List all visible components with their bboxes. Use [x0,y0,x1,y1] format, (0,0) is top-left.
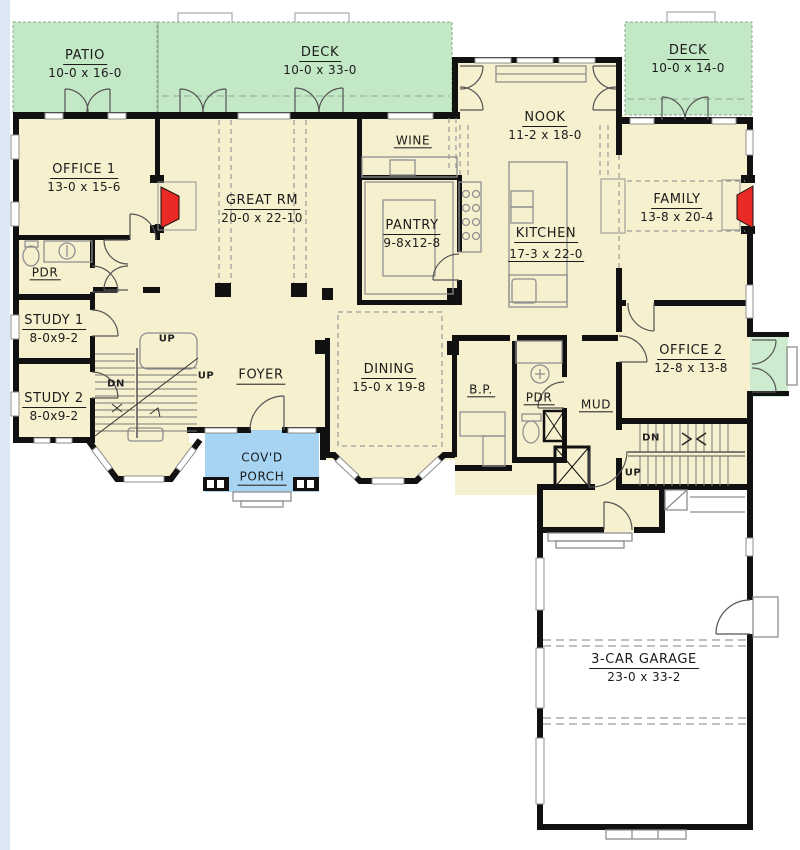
floor-plan: PATIO10-0 x 16-0 DECK10-0 x 33-0 DECK10-… [0,0,800,850]
room-label-patio: PATIO10-0 x 16-0 [48,44,122,80]
room-label-wine: WINE [394,129,432,148]
floor-plan-drawing [0,0,800,850]
room-label-garage: 3-CAR GARAGE23-0 x 33-2 [589,648,699,684]
stair-label-front-up-upper: UP [159,334,175,345]
stair-label-back-up: UP [625,468,641,479]
room-label-mud: MUD [579,393,613,412]
garage-rear-stoop [606,830,686,839]
office2-landing [750,335,788,397]
room-label-deck-right: DECK10-0 x 14-0 [651,39,725,75]
room-label-pdr-2: PDR [524,386,555,405]
room-label-foyer: FOYER [236,364,285,385]
room-label-pdr-1: PDR [30,261,61,280]
room-label-bp: B.P. [467,378,495,397]
room-label-office-1: OFFICE 113-0 x 15-6 [47,158,121,194]
landing-step [787,347,797,385]
room-label-study-1: STUDY 18-0x9-2 [22,309,86,345]
stair-label-front-up-lower: UP [198,371,214,382]
stair-label-back-dn: DN [642,433,660,444]
room-label-nook: NOOK11-2 x 18-0 [508,106,582,142]
stair-label-front-dn: DN [107,379,125,390]
room-label-kitchen: KITCHEN17-3 x 22-0 [508,222,584,262]
porch-steps [233,492,291,501]
room-label-dining: DINING15-0 x 19-8 [352,358,426,394]
room-label-deck-main: DECK10-0 x 33-0 [283,41,357,77]
outdoor-areas [13,12,752,115]
garage-side-stoop [753,597,778,637]
room-label-family: FAMILY13-8 x 20-4 [640,188,714,224]
room-label-pantry: PANTRY9-8x12-8 [383,214,440,250]
room-label-study-2: STUDY 28-0x9-2 [22,387,86,423]
room-label-great-rm: GREAT RM20-0 x 22-10 [221,189,303,225]
room-label-office-2: OFFICE 212-8 x 13-8 [654,339,728,375]
room-label-covd-porch: COV'DPORCH [238,447,287,486]
